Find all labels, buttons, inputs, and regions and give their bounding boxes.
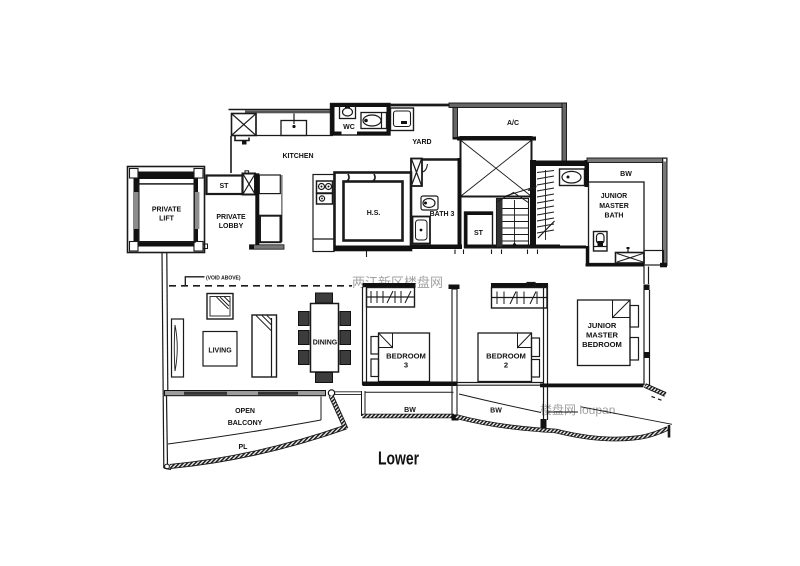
svg-text:BW: BW xyxy=(404,407,416,414)
svg-text:两江新区楼盘网: 两江新区楼盘网 xyxy=(352,275,443,290)
svg-text:YARD: YARD xyxy=(412,139,431,146)
svg-text:(VOID ABOVE): (VOID ABOVE) xyxy=(206,275,241,281)
svg-text:JUNIOR: JUNIOR xyxy=(601,193,627,200)
svg-text:BEDROOM: BEDROOM xyxy=(386,352,426,361)
svg-text:MASTER: MASTER xyxy=(599,203,629,210)
svg-text:DINING: DINING xyxy=(313,340,338,347)
svg-text:A/C: A/C xyxy=(507,120,519,127)
svg-text:OPEN: OPEN xyxy=(235,408,255,415)
svg-text:ST: ST xyxy=(220,183,230,190)
svg-text:WC: WC xyxy=(343,124,355,131)
svg-text:MASTER: MASTER xyxy=(586,331,619,340)
svg-text:H.S.: H.S. xyxy=(367,210,381,217)
svg-text:楼盘网 loupan: 楼盘网 loupan xyxy=(540,402,615,417)
svg-text:PRIVATE: PRIVATE xyxy=(216,214,246,221)
svg-text:ST: ST xyxy=(474,230,484,237)
svg-text:LIFT: LIFT xyxy=(159,216,174,223)
svg-text:2: 2 xyxy=(504,361,508,370)
svg-text:BW: BW xyxy=(620,171,632,178)
svg-text:BEDROOM: BEDROOM xyxy=(582,340,622,349)
svg-text:Lower: Lower xyxy=(378,448,419,469)
svg-text:BATH 3: BATH 3 xyxy=(430,211,455,218)
svg-text:PL: PL xyxy=(239,444,249,451)
svg-text:PRIVATE: PRIVATE xyxy=(152,207,182,214)
svg-text:BEDROOM: BEDROOM xyxy=(486,352,526,361)
svg-text:LIVING: LIVING xyxy=(208,348,232,355)
svg-text:KITCHEN: KITCHEN xyxy=(282,153,313,160)
svg-text:3: 3 xyxy=(404,361,408,370)
svg-text:BW: BW xyxy=(490,408,502,415)
svg-text:JUNIOR: JUNIOR xyxy=(588,321,617,330)
svg-text:LOBBY: LOBBY xyxy=(219,223,244,230)
svg-text:BATH: BATH xyxy=(605,213,624,220)
svg-text:BALCONY: BALCONY xyxy=(228,420,263,427)
